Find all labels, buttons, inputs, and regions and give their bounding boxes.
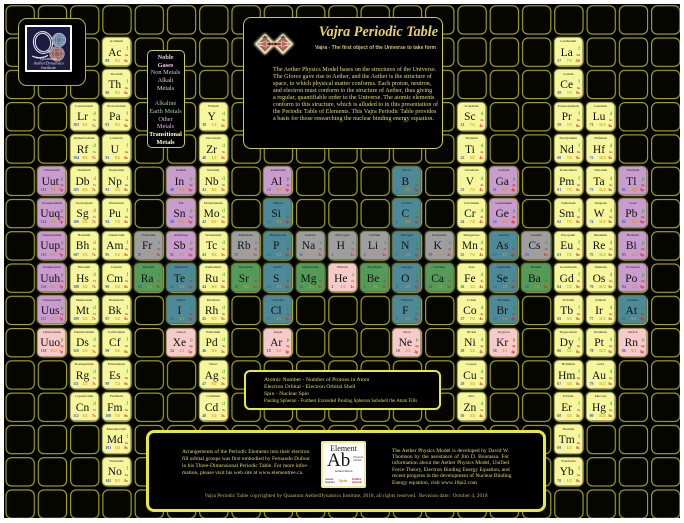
svg-text:Institute: Institute xyxy=(40,65,56,70)
